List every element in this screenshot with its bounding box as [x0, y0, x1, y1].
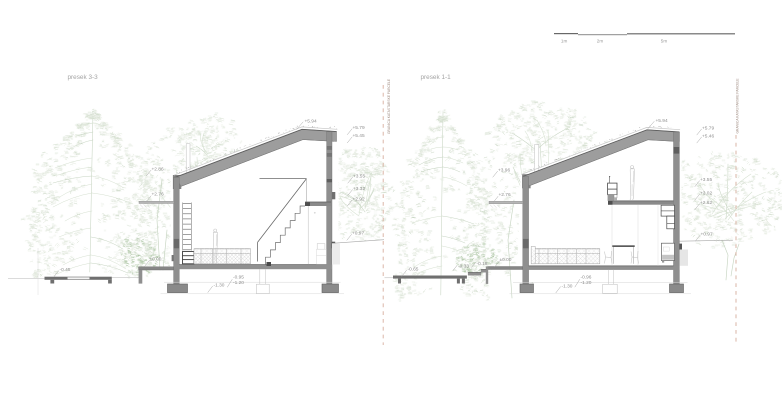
svg-text:+5.79: +5.79: [702, 125, 714, 131]
svg-text:-0.95: -0.95: [233, 274, 244, 280]
svg-text:+5.94: +5.94: [305, 118, 317, 124]
svg-text:5m: 5m: [661, 39, 668, 44]
svg-text:±0.00: ±0.00: [500, 257, 512, 263]
svg-text:presek 1-1: presek 1-1: [421, 74, 452, 81]
svg-text:-0.45: -0.45: [60, 267, 71, 273]
svg-text:-1.30: -1.30: [214, 283, 225, 289]
svg-text:-0.33: -0.33: [458, 264, 469, 270]
svg-text:±0.00: ±0.00: [150, 256, 162, 262]
svg-text:+2.76: +2.76: [499, 192, 511, 198]
svg-text:+3.96: +3.96: [498, 168, 510, 174]
svg-text:GRANICA KATASTARSKE PARCELE: GRANICA KATASTARSKE PARCELE: [387, 78, 391, 134]
svg-text:-1.30: -1.30: [562, 284, 573, 290]
svg-text:+2.62: +2.62: [700, 200, 712, 206]
svg-text:+3.32: +3.32: [353, 186, 365, 192]
svg-text:GRANICA KATASTARSKE PARCELE: GRANICA KATASTARSKE PARCELE: [736, 78, 740, 134]
svg-text:+5.46: +5.46: [702, 133, 714, 139]
svg-text:+5.79: +5.79: [353, 125, 365, 131]
svg-text:-0.18: -0.18: [477, 261, 488, 267]
svg-text:1m: 1m: [561, 39, 568, 44]
svg-text:-1.20: -1.20: [581, 280, 592, 286]
svg-text:2m: 2m: [597, 39, 604, 44]
svg-text:+3.02: +3.02: [700, 191, 712, 197]
svg-text:-1.20: -1.20: [233, 280, 244, 286]
svg-text:presek 3-3: presek 3-3: [68, 74, 99, 81]
svg-text:+0.97: +0.97: [352, 231, 364, 237]
svg-text:+3.55: +3.55: [700, 177, 712, 183]
svg-text:+5.94: +5.94: [656, 118, 668, 124]
svg-text:+0.97: +0.97: [701, 232, 713, 238]
svg-text:+2.92: +2.92: [353, 196, 365, 202]
svg-text:+5.45: +5.45: [353, 133, 365, 139]
svg-text:-0.65: -0.65: [408, 267, 419, 273]
svg-text:+2.76: +2.76: [152, 192, 164, 198]
svg-text:+3.55: +3.55: [353, 174, 365, 180]
svg-text:-0.96: -0.96: [581, 274, 592, 280]
svg-text:+2.86: +2.86: [152, 166, 164, 172]
